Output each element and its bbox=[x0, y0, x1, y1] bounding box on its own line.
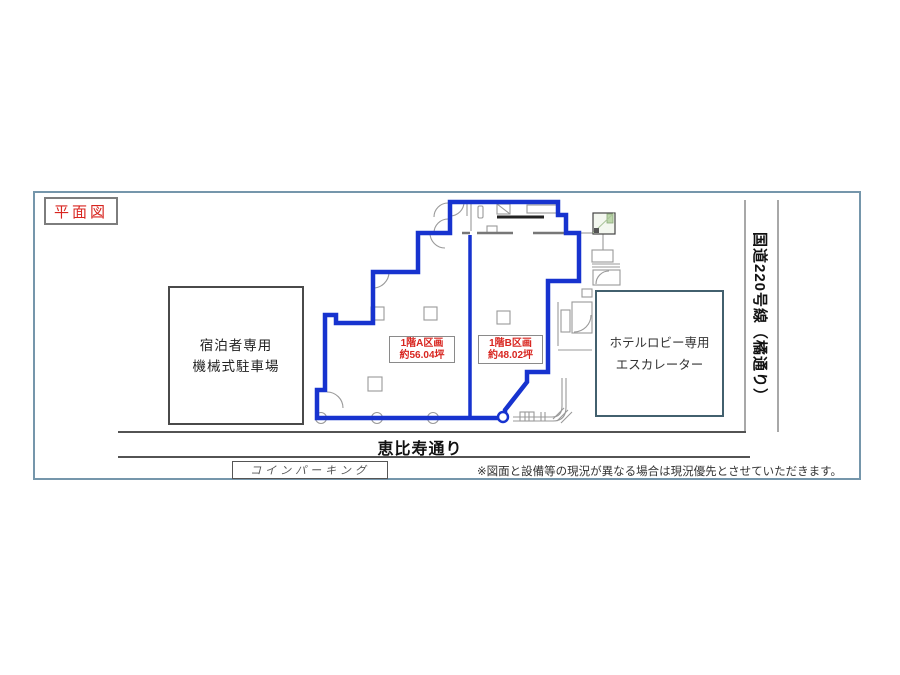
hotel-lobby-box: ホテルロビー専用 エスカレーター bbox=[595, 290, 724, 417]
floor-plan-page: 平面図 宿泊者専用 機械式駐車場 ホテルロビー専用 エスカレーター 1階A区画 … bbox=[0, 0, 900, 675]
road-name-bottom: 恵比寿通り bbox=[375, 435, 465, 459]
premises-outline bbox=[317, 202, 579, 422]
plan-title: 平面図 bbox=[54, 201, 108, 222]
road-name-right: 国道220号線（橘通り） bbox=[751, 223, 771, 413]
plan-title-box: 平面図 bbox=[44, 197, 118, 225]
section-b-name: 1階B区画 bbox=[489, 338, 532, 350]
disclaimer-text: ※図面と設備等の現況が異なる場合は現況優先とさせていただきます。 bbox=[477, 463, 857, 479]
guest-parking-line1: 宿泊者専用 bbox=[200, 335, 273, 356]
hotel-lobby-line2: エスカレーター bbox=[616, 354, 704, 376]
coin-parking-label: コインパーキング bbox=[250, 462, 370, 478]
section-b-area: 約48.02坪 bbox=[488, 350, 533, 362]
section-a-name: 1階A区画 bbox=[401, 338, 444, 350]
section-a-area: 約56.04坪 bbox=[399, 350, 444, 362]
coin-parking-box: コインパーキング bbox=[232, 461, 388, 479]
corner-column-circle bbox=[498, 412, 508, 422]
utility-box bbox=[593, 213, 615, 234]
section-a-label: 1階A区画 約56.04坪 bbox=[389, 336, 455, 363]
hotel-lobby-line1: ホテルロビー専用 bbox=[609, 332, 709, 354]
guest-parking-line2: 機械式駐車場 bbox=[193, 356, 280, 377]
section-b-label: 1階B区画 約48.02坪 bbox=[478, 335, 543, 364]
guest-parking-box: 宿泊者専用 機械式駐車場 bbox=[168, 286, 304, 425]
